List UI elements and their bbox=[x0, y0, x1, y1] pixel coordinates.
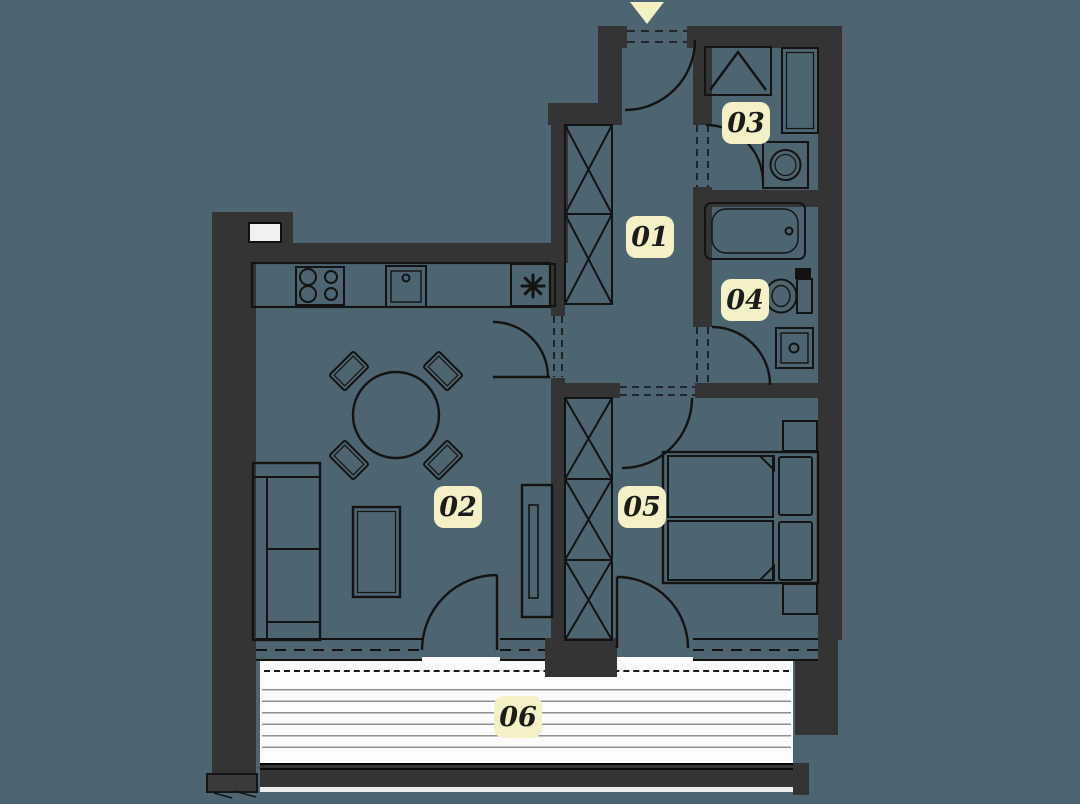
chair-icon bbox=[329, 440, 369, 480]
room-label-04: 04 bbox=[721, 279, 769, 321]
living-room-hall-door bbox=[493, 316, 562, 377]
shelf-cabinet-icon bbox=[705, 47, 771, 95]
bathtub-icon bbox=[705, 203, 805, 259]
chair-icon bbox=[329, 351, 369, 391]
nightstand-icon bbox=[783, 421, 817, 451]
chair-icon bbox=[423, 351, 463, 391]
room-label-06: 06 bbox=[494, 696, 542, 738]
break-line-marks bbox=[214, 791, 256, 798]
floor-plan: 01 02 03 04 05 06 bbox=[0, 0, 1080, 804]
room-label-02: 02 bbox=[434, 486, 482, 528]
coffee-table-icon bbox=[353, 507, 400, 597]
room-label-03: 03 bbox=[722, 102, 770, 144]
bathroom-sink-icon bbox=[776, 328, 813, 368]
dining-table-icon bbox=[353, 372, 439, 458]
living-room-balcony-door bbox=[422, 575, 497, 650]
extractor-star-icon bbox=[511, 264, 555, 306]
hallway-wardrobe-icon bbox=[565, 125, 612, 304]
bedroom-balcony-door bbox=[617, 577, 688, 648]
sofa-icon bbox=[253, 463, 320, 640]
kitchen-sink-icon bbox=[386, 266, 426, 307]
double-bed-icon bbox=[663, 452, 818, 583]
bathroom-04-door bbox=[697, 327, 770, 385]
chair-icon bbox=[423, 440, 463, 480]
toilet-icon bbox=[766, 269, 813, 313]
tv-cabinet-icon bbox=[522, 485, 552, 617]
nightstand-icon bbox=[783, 584, 817, 614]
tall-cabinet-icon bbox=[782, 48, 818, 133]
washing-machine-icon bbox=[763, 142, 808, 188]
plan-linework bbox=[0, 0, 1080, 804]
bedroom-wardrobe-icon bbox=[565, 398, 612, 640]
room-label-01: 01 bbox=[626, 216, 674, 258]
entrance-door bbox=[625, 31, 695, 110]
room-label-05: 05 bbox=[618, 486, 666, 528]
cooktop-icon bbox=[296, 267, 344, 305]
